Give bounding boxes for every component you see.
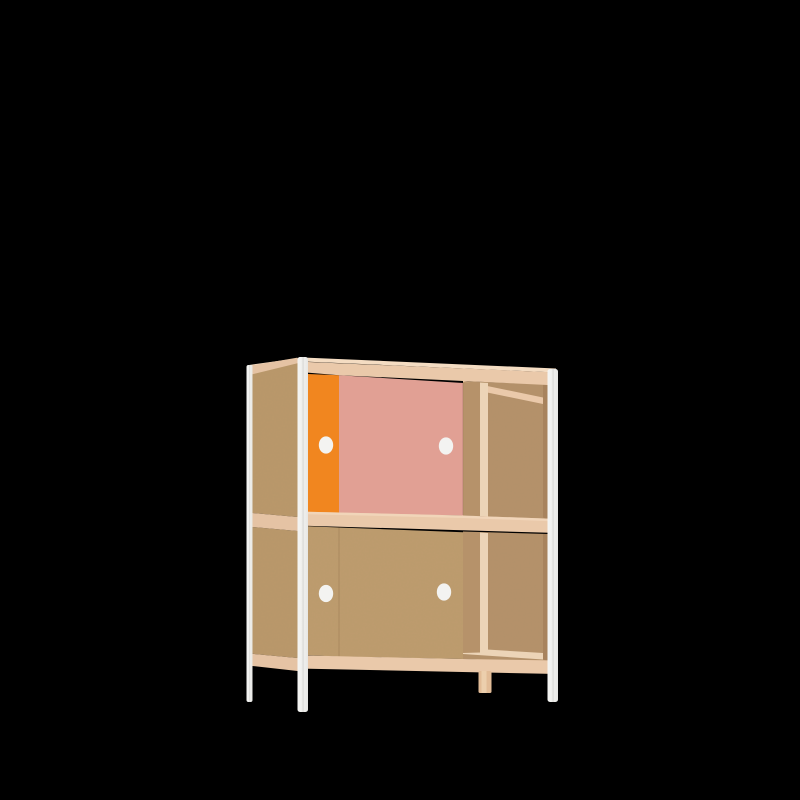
bottom-main-door-handle	[437, 583, 451, 600]
left-side-panel-lower	[253, 527, 298, 658]
left-side-panel-upper	[253, 363, 298, 517]
bottom-right-side-interior	[543, 534, 548, 662]
bottom-door-seam	[339, 528, 340, 657]
top-right-side-interior	[543, 385, 548, 520]
bottom-divider-panel	[463, 532, 480, 653]
back-right-leg	[479, 671, 492, 693]
front-left-post	[298, 357, 309, 712]
product-illustration	[0, 0, 800, 800]
pink-door-handle	[439, 437, 453, 454]
left-side-panel	[253, 363, 298, 658]
top-divider-panel	[463, 382, 480, 516]
back-right-leg-highlight	[482, 671, 487, 693]
orange-door-handle	[319, 436, 333, 453]
back-left-post	[247, 365, 253, 702]
cabinet-illustration	[0, 0, 800, 800]
bottom-left-door-handle	[319, 585, 333, 602]
pink-door-edge-shadow	[462, 383, 463, 515]
front-right-post	[548, 369, 559, 702]
bottom-divider-edge	[480, 533, 488, 653]
top-divider-edge	[480, 383, 488, 517]
